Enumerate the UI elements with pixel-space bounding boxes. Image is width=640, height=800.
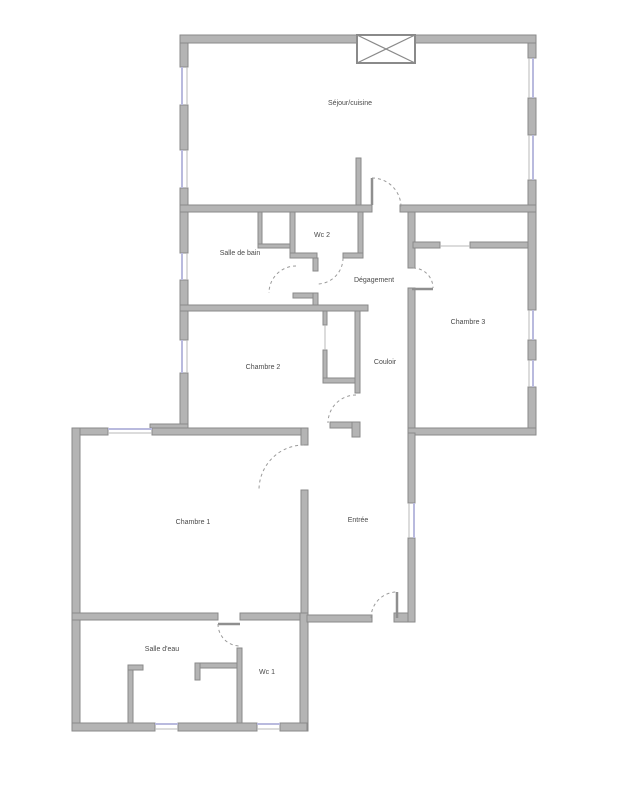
wall-segment [408,433,415,503]
wall-segment [180,43,188,67]
wall-segment [195,663,200,680]
wall-segment [180,205,372,212]
wall-segment [180,105,188,150]
door-chambre-3-arc [413,268,433,288]
wall-segment [290,253,317,258]
room-label-chambre-2: Chambre 2 [246,364,281,371]
room-label-couloir: Couloir [374,359,397,366]
floorplan-page: Séjour/cuisineWc 2Salle de bainDégagemen… [0,0,640,800]
wall-segment [301,428,308,445]
wall-segment [408,538,415,622]
wall-segment [323,378,360,383]
floorplan-svg: Séjour/cuisineWc 2Salle de bainDégagemen… [0,0,640,800]
wall-segment [300,613,308,731]
wall-segment [307,615,372,622]
room-label-wc-2: Wc 2 [314,232,330,239]
door-sejour-arc [372,178,401,207]
wall-segment [195,663,237,668]
wall-segment [128,665,133,723]
wall-segment [152,428,307,435]
wall-segment [150,424,188,428]
wall-segment [470,242,536,248]
door-wc2-arc [317,258,343,284]
room-labels-layer: Séjour/cuisineWc 2Salle de bainDégagemen… [145,100,486,676]
wall-segment [528,43,536,58]
wall-segment [290,212,295,258]
room-label-entree: Entrée [348,517,369,524]
room-label-wc-1: Wc 1 [259,669,275,676]
wall-segment [178,723,257,731]
wall-segment [280,723,307,731]
doors-layer [218,178,433,646]
wall-segment [258,244,294,248]
wall-segment [408,212,415,268]
room-label-salle-d-eau: Salle d'eau [145,646,180,653]
wall-segment [180,305,368,311]
door-chambre-1-arc [259,445,304,490]
wall-segment [528,212,536,310]
wall-segment [72,723,155,731]
windows-layer [108,58,533,724]
wall-segment [400,205,536,212]
door-chambre-2-arc [328,395,356,423]
wall-segment [293,293,315,298]
wall-segment [408,288,415,433]
wall-segment [355,311,360,393]
wall-segment [528,340,536,360]
wall-segment [528,98,536,135]
room-label-chambre-3: Chambre 3 [451,319,486,326]
wall-segment [356,158,361,205]
wall-segment [301,490,308,620]
wall-segment [352,422,360,437]
wall-segment [240,613,307,620]
wall-segment [313,258,318,271]
wall-segment [408,428,536,435]
wall-segment [343,253,363,258]
wall-segment [72,613,218,620]
walls-layer [72,35,536,731]
wall-segment [258,212,262,248]
room-label-sejour-cuisine: Séjour/cuisine [328,100,372,107]
wall-segment [72,428,80,730]
wall-segment [413,242,440,248]
wall-segment [323,311,327,325]
wall-segment [528,387,536,428]
door-salle-d-eau-arc [218,624,240,646]
wall-segment [128,665,143,670]
room-label-degagement: Dégagement [354,277,394,284]
wall-segment [358,212,363,258]
shaft-layer [357,35,415,63]
door-entree-arc [371,592,397,618]
wall-segment [180,212,188,253]
thin-lines-layer [108,58,529,729]
door-salle-de-bain-arc [269,266,296,293]
wall-segment [237,648,242,723]
room-label-salle-de-bain: Salle de bain [220,250,261,257]
wall-segment [180,373,188,428]
room-label-chambre-1: Chambre 1 [176,519,211,526]
